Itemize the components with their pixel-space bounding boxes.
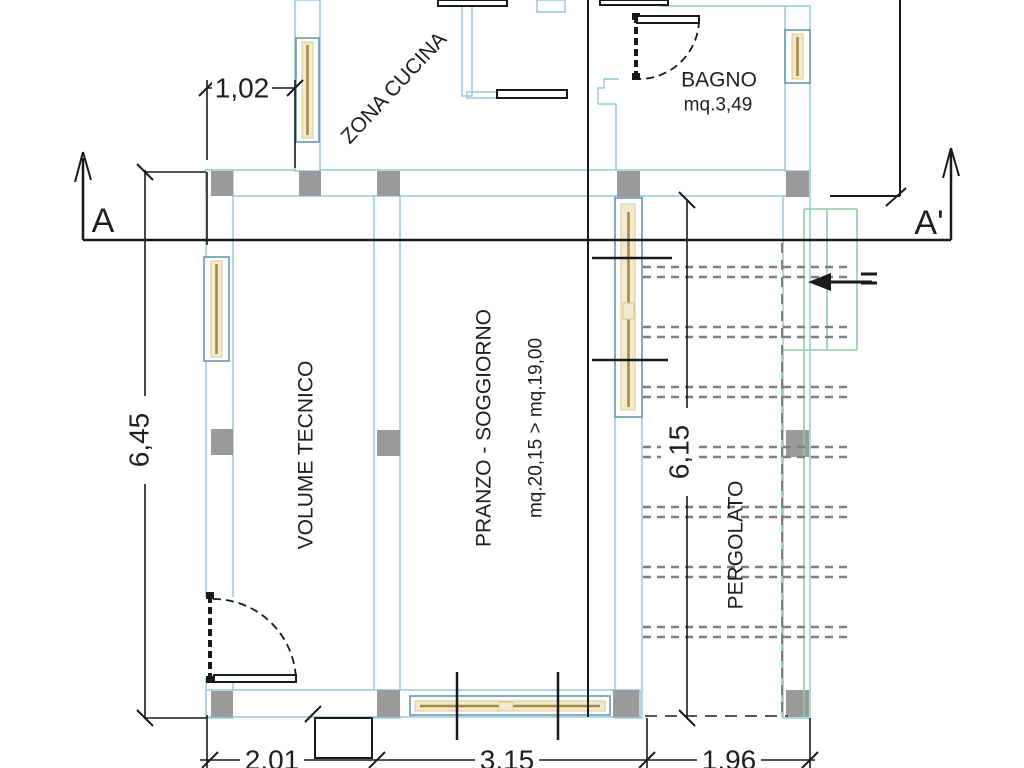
kitchen-fixture-bar [438, 0, 507, 6]
column [617, 171, 640, 197]
kitchen-top-fixture [537, 0, 565, 12]
label-living-room: PRANZO - SOGGIORNO [473, 309, 496, 547]
label-technical-room: VOLUME TECNICO [295, 361, 318, 550]
column [211, 171, 233, 196]
section-label-a-prime: A' [914, 204, 943, 242]
bathroom-niche-step [598, 79, 619, 170]
column [613, 690, 639, 717]
column [377, 690, 400, 717]
wall-kitchen-inner [462, 0, 472, 96]
dim-left-height: 6,45 [124, 413, 155, 468]
label-pergola: PERGOLATO [725, 481, 748, 610]
external-pilaster [315, 718, 372, 758]
floor-plan-page: ZONA CUCINA BAGNO mq.3,49 VOLUME TECNICO… [0, 0, 1024, 768]
column [377, 430, 400, 456]
wall-middle-band [374, 196, 400, 718]
column [211, 429, 233, 455]
column [786, 690, 809, 717]
label-bathroom: BAGNO [681, 69, 757, 92]
dim-bottom-left: 2,01 [245, 745, 300, 768]
window-bottom-long [410, 696, 610, 715]
column [377, 171, 400, 196]
dim-pergola-height: 6,15 [664, 425, 695, 480]
window-bathroom [785, 30, 810, 83]
window-kitchen-left [296, 38, 319, 142]
dim-bottom-center: 3,15 [480, 745, 535, 768]
column [786, 171, 809, 197]
label-bathroom-area: mq.3,49 [684, 95, 753, 116]
floor-plan-canvas: ZONA CUCINA BAGNO mq.3,49 VOLUME TECNICO… [0, 0, 1024, 768]
section-label-a: A [92, 202, 115, 240]
window-joint [499, 702, 513, 711]
window-joint [623, 303, 634, 319]
dim-kitchen-window: 1,02 [215, 73, 270, 104]
wall-top-band [206, 170, 810, 196]
kitchen-counter-bar [497, 90, 567, 98]
bathroom-top-bar [600, 0, 668, 5]
label-living-room-area: mq.20,15 > mq.19,00 [526, 338, 547, 518]
entrance-arrow [808, 273, 877, 291]
column [299, 171, 321, 196]
dim-bottom-right: 1,96 [702, 745, 757, 768]
window-right-wall-tall [615, 198, 642, 417]
column [786, 430, 809, 457]
column [211, 691, 233, 717]
window-left-wall [204, 257, 229, 361]
label-kitchen: ZONA CUCINA [337, 28, 452, 149]
door-technical-room [205, 592, 296, 683]
